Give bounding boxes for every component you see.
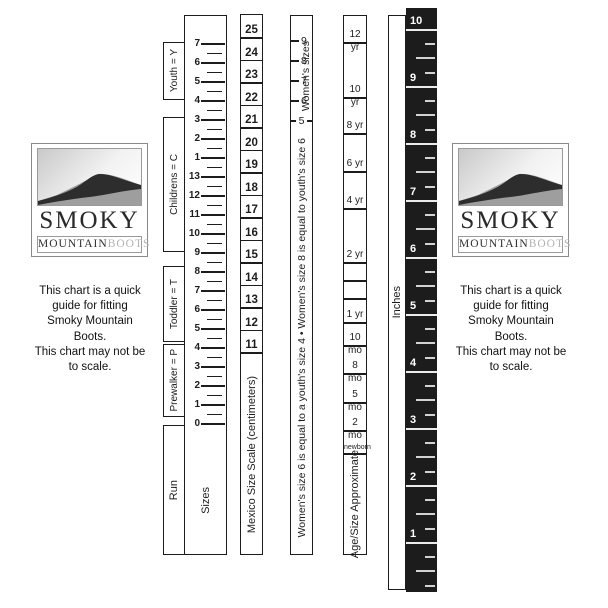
- size-tick-major: [201, 119, 225, 121]
- womens-number: 6: [301, 95, 307, 107]
- size-tick-half: [207, 53, 222, 55]
- size-tick-major: [201, 271, 225, 273]
- inch-tick-quarter: [425, 43, 435, 45]
- size-number: 1: [187, 399, 200, 411]
- inch-tick-half: [416, 57, 435, 59]
- mexico-number: 16: [241, 227, 262, 239]
- inch-number: 10: [410, 14, 422, 28]
- inch-tick-quarter: [425, 556, 435, 558]
- note-line: This chart may not be: [441, 345, 581, 360]
- womens-number: 7: [301, 75, 307, 87]
- mexico-caption: Mexico Size Scale (centimeters): [246, 376, 258, 533]
- womens-number: 5: [296, 115, 308, 127]
- size-tick-half: [207, 205, 222, 207]
- size-tick-half: [207, 110, 222, 112]
- run-label-box: Run: [163, 425, 185, 555]
- mexico-number: 19: [241, 159, 262, 171]
- size-tick-major: [201, 214, 225, 216]
- bracket-youth: Youth = Y: [163, 42, 185, 100]
- size-tick-half: [207, 243, 222, 245]
- inch-line: [406, 485, 437, 487]
- size-number: 6: [187, 304, 200, 316]
- age-line: [344, 262, 366, 264]
- size-number: 11: [187, 209, 200, 221]
- inch-number: 3: [410, 413, 416, 427]
- size-tick-major: [201, 328, 225, 330]
- size-tick-major: [201, 404, 225, 406]
- run-label: Run: [168, 480, 180, 500]
- womens-tick: [291, 40, 299, 42]
- note-line: Smoky Mountain: [441, 314, 581, 329]
- size-tick-major: [201, 385, 225, 387]
- inch-tick-quarter: [425, 100, 435, 102]
- note-line: guide for fitting: [441, 299, 581, 314]
- mountain-artwork-icon: [458, 148, 563, 206]
- size-number: 5: [187, 76, 200, 88]
- womens-sizes-scale: Women's sizes Women's size 6 is equal to…: [290, 15, 313, 555]
- mexico-number: 11: [241, 339, 262, 351]
- size-tick-half: [207, 186, 222, 188]
- inch-number: 1: [410, 527, 416, 541]
- bracket-label-youth: Youth = Y: [169, 49, 180, 92]
- note-line: to scale.: [441, 360, 581, 375]
- inch-number: 7: [410, 185, 416, 199]
- note-line: This chart is a quick: [441, 284, 581, 299]
- sizes-caption-area: Sizes: [185, 446, 226, 554]
- note-line: This chart is a quick: [20, 284, 160, 299]
- size-tick-major: [201, 347, 225, 349]
- mexico-line: [241, 262, 262, 264]
- logo-smoky-text: SMOKY: [37, 206, 142, 236]
- size-tick-major: [201, 100, 225, 102]
- size-number: 10: [187, 228, 200, 240]
- size-number: 3: [187, 361, 200, 373]
- disclaimer-note-left: This chart is a quickguide for fittingSm…: [20, 284, 160, 375]
- logo-boots-text: BOOTS: [529, 238, 572, 250]
- logo-mountain-text: MOUNTAIN: [38, 238, 108, 250]
- mexico-number: 24: [241, 47, 262, 59]
- size-number: 6: [187, 57, 200, 69]
- mexico-size-scale: Mexico Size Scale (centimeters) 25242322…: [240, 14, 263, 555]
- smoky-mountain-logo-left: SMOKY MOUNTAINBOOTS: [31, 143, 148, 257]
- inch-tick-quarter: [425, 414, 435, 416]
- inches-label-box: Inches: [388, 15, 406, 590]
- size-chart: SMOKY MOUNTAINBOOTS SMOKY MOUNTAINBOOTS …: [0, 0, 608, 608]
- inch-line: [406, 143, 437, 145]
- inch-number: 4: [410, 356, 416, 370]
- mexico-number: 20: [241, 137, 262, 149]
- size-number: 0: [187, 418, 200, 430]
- mexico-line: [241, 330, 262, 332]
- size-number: 8: [187, 266, 200, 278]
- age-caption: Age/Size Approximate: [349, 450, 361, 558]
- mexico-caption-area: Mexico Size Scale (centimeters): [241, 355, 262, 554]
- mexico-line: [241, 150, 262, 152]
- mexico-number: 23: [241, 69, 262, 81]
- size-tick-major: [201, 252, 225, 254]
- size-tick-major: [201, 423, 225, 425]
- womens-number: 9: [301, 35, 307, 47]
- logo-mountain-text: MOUNTAIN: [459, 238, 529, 250]
- mexico-number: 25: [241, 24, 262, 36]
- mexico-line: [241, 352, 262, 354]
- size-tick-major: [201, 195, 225, 197]
- age-size-scale: Age/Size Approximate 12 yr10 yr8 yr6 yr4…: [343, 15, 367, 555]
- size-tick-half: [207, 414, 222, 416]
- inch-tick-half: [416, 171, 435, 173]
- womens-equivalence-note: Women's size 6 is equal to a youth's siz…: [296, 138, 308, 537]
- note-line: guide for fitting: [20, 299, 160, 314]
- inch-line: [406, 371, 437, 373]
- age-label: 2 mo: [344, 416, 366, 442]
- inch-tick-quarter: [425, 72, 435, 74]
- womens-note-area: Women's size 6 is equal to a youth's siz…: [291, 124, 312, 552]
- mexico-line: [241, 37, 262, 39]
- age-label: 1 yr: [344, 308, 366, 321]
- age-label: 2 yr: [344, 248, 366, 261]
- bracket-childrens: Childrens = C: [163, 117, 185, 252]
- size-tick-half: [207, 148, 222, 150]
- age-label: 5 mo: [344, 388, 366, 414]
- inch-tick-quarter: [425, 186, 435, 188]
- inch-tick-half: [416, 513, 435, 515]
- logo-mountainboots-text: MOUNTAINBOOTS: [458, 236, 563, 253]
- age-label: 10 mo: [344, 331, 366, 357]
- inch-tick-quarter: [425, 271, 435, 273]
- inch-tick-half: [416, 342, 435, 344]
- size-tick-major: [201, 43, 225, 45]
- inch-tick-quarter: [425, 385, 435, 387]
- inch-number: 8: [410, 128, 416, 142]
- inch-number: 6: [410, 242, 416, 256]
- inch-line: [406, 200, 437, 202]
- inch-tick-half: [416, 114, 435, 116]
- inch-tick-half: [416, 399, 435, 401]
- inch-tick-quarter: [425, 357, 435, 359]
- bracket-label-childrens: Childrens = C: [169, 154, 180, 215]
- size-tick-half: [207, 376, 222, 378]
- size-tick-major: [201, 138, 225, 140]
- inch-tick-quarter: [425, 328, 435, 330]
- womens-tick: [291, 100, 299, 102]
- inch-tick-quarter: [425, 157, 435, 159]
- inch-number: 5: [410, 299, 416, 313]
- age-caption-area: Age/Size Approximate: [344, 454, 366, 554]
- size-tick-half: [207, 338, 222, 340]
- size-tick-half: [207, 357, 222, 359]
- size-number: 7: [187, 285, 200, 297]
- note-line: Boots.: [20, 330, 160, 345]
- logo-boots-text: BOOTS: [108, 238, 151, 250]
- mexico-number: 14: [241, 272, 262, 284]
- note-line: Smoky Mountain: [20, 314, 160, 329]
- inch-tick-quarter: [425, 300, 435, 302]
- size-number: 4: [187, 95, 200, 107]
- inch-tick-quarter: [425, 528, 435, 530]
- age-line: [344, 322, 366, 324]
- age-label: 8 yr: [344, 119, 366, 132]
- size-tick-half: [207, 72, 222, 74]
- mexico-line: [241, 60, 262, 62]
- age-line: [344, 298, 366, 300]
- mountain-artwork-icon: [37, 148, 142, 206]
- size-number: 5: [187, 323, 200, 335]
- size-tick-half: [207, 281, 222, 283]
- age-label: 6 yr: [344, 157, 366, 170]
- inch-number: 2: [410, 470, 416, 484]
- size-tick-half: [207, 300, 222, 302]
- disclaimer-note-right: This chart is a quickguide for fittingSm…: [441, 284, 581, 375]
- inch-tick-quarter: [425, 499, 435, 501]
- size-tick-half: [207, 395, 222, 397]
- size-tick-major: [201, 62, 225, 64]
- size-number: 7: [187, 38, 200, 50]
- mexico-number: 22: [241, 92, 262, 104]
- age-label: 8 mo: [344, 359, 366, 385]
- size-number: 2: [187, 380, 200, 392]
- inch-tick-quarter: [425, 129, 435, 131]
- size-tick-major: [201, 366, 225, 368]
- mexico-number: 21: [241, 114, 262, 126]
- inch-tick-quarter: [425, 214, 435, 216]
- inches-caption: Inches: [391, 286, 403, 318]
- inch-line: [406, 428, 437, 430]
- note-line: to scale.: [20, 360, 160, 375]
- logo-mountainboots-text: MOUNTAINBOOTS: [37, 236, 142, 253]
- inch-tick-half: [416, 456, 435, 458]
- size-tick-major: [201, 309, 225, 311]
- age-line: [344, 280, 366, 282]
- mexico-line: [241, 285, 262, 287]
- note-line: Boots.: [441, 330, 581, 345]
- bracket-toddler: Toddler = T: [163, 266, 185, 342]
- inch-line: [406, 542, 437, 544]
- size-number: 9: [187, 247, 200, 259]
- mexico-line: [241, 172, 262, 174]
- inch-tick-half: [416, 570, 435, 572]
- womens-number: 8: [301, 55, 307, 67]
- logo-smoky-text: SMOKY: [458, 206, 563, 236]
- bracket-prewalker: Prewalker = P: [163, 344, 185, 417]
- mexico-line: [241, 307, 262, 309]
- inch-tick-quarter: [425, 471, 435, 473]
- size-tick-half: [207, 91, 222, 93]
- size-tick-half: [207, 167, 222, 169]
- age-label: newborn: [344, 443, 366, 453]
- mexico-line: [241, 217, 262, 219]
- size-tick-major: [201, 157, 225, 159]
- size-tick-half: [207, 319, 222, 321]
- size-number: 3: [187, 114, 200, 126]
- inch-tick-quarter: [425, 585, 435, 587]
- age-label: 10 yr: [344, 83, 366, 109]
- mexico-number: 15: [241, 249, 262, 261]
- age-line: [344, 208, 366, 210]
- inch-line: [406, 86, 437, 88]
- note-line: This chart may not be: [20, 345, 160, 360]
- womens-tick: [291, 80, 299, 82]
- age-label: 12 yr: [344, 28, 366, 54]
- inch-tick-half: [416, 285, 435, 287]
- size-number: 13: [187, 171, 200, 183]
- sizes-ruler: Sizes 7654321131211109876543210: [184, 15, 227, 555]
- inches-ruler: 10987654321: [406, 8, 437, 592]
- size-tick-major: [201, 81, 225, 83]
- inch-line: [406, 257, 437, 259]
- size-tick-major: [201, 233, 225, 235]
- inch-line: [406, 29, 437, 31]
- smoky-mountain-logo-right: SMOKY MOUNTAINBOOTS: [452, 143, 569, 257]
- bracket-label-prewalker: Prewalker = P: [169, 349, 180, 412]
- size-tick-half: [207, 262, 222, 264]
- mexico-line: [241, 195, 262, 197]
- mexico-line: [241, 82, 262, 84]
- inch-number: 9: [410, 71, 416, 85]
- age-line: [344, 453, 366, 455]
- size-tick-half: [207, 129, 222, 131]
- inch-tick-quarter: [425, 243, 435, 245]
- sizes-caption: Sizes: [200, 487, 212, 514]
- mexico-line: [241, 127, 262, 129]
- womens-tick: [291, 60, 299, 62]
- size-number: 4: [187, 342, 200, 354]
- mexico-number: 17: [241, 204, 262, 216]
- size-tick-half: [207, 224, 222, 226]
- inch-tick-quarter: [425, 442, 435, 444]
- size-tick-major: [201, 176, 225, 178]
- age-line: [344, 171, 366, 173]
- size-number: 12: [187, 190, 200, 202]
- mexico-number: 13: [241, 294, 262, 306]
- mexico-number: 18: [241, 182, 262, 194]
- inch-tick-half: [416, 228, 435, 230]
- age-label: 4 yr: [344, 194, 366, 207]
- size-tick-major: [201, 290, 225, 292]
- bracket-label-toddler: Toddler = T: [169, 279, 180, 329]
- inch-line: [406, 314, 437, 316]
- mexico-line: [241, 240, 262, 242]
- mexico-line: [241, 105, 262, 107]
- size-number: 2: [187, 133, 200, 145]
- size-number: 1: [187, 152, 200, 164]
- mexico-number: 12: [241, 317, 262, 329]
- age-line: [344, 133, 366, 135]
